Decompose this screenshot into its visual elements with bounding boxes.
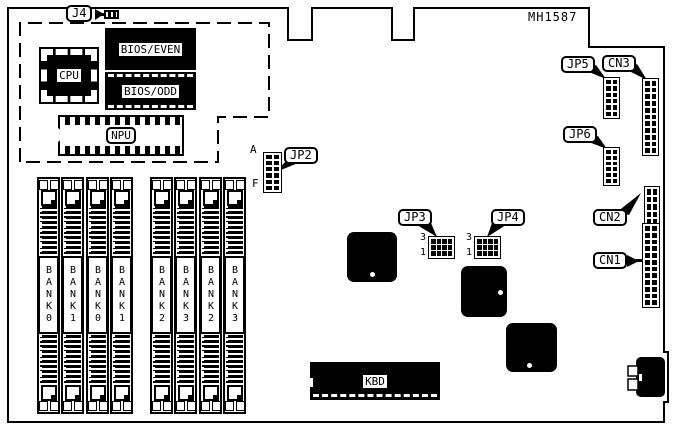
cn3-label: CN3: [608, 56, 630, 70]
jp2-pin-a-label: A: [250, 144, 257, 155]
j4-label: J4: [72, 6, 86, 20]
plcc-chip-3-pin1-dot: [527, 363, 532, 368]
j4-callout: J4: [66, 5, 92, 22]
bios-odd-chip: BIOS/ODD: [105, 72, 196, 110]
cn1-connector: [642, 223, 660, 308]
motherboard-diagram: J4 CPU BIOS/EVEN BIOS/ODD NPU: [0, 0, 673, 434]
cn1-label: CN1: [599, 253, 621, 267]
board-id: MH1587: [528, 11, 577, 24]
bank-label: BANK3: [181, 265, 191, 325]
plcc-chip-1: [347, 232, 397, 282]
bank-label: BANK3: [230, 265, 240, 325]
plcc-chip-2: [461, 266, 507, 317]
bios-odd-top-pins: [108, 74, 193, 77]
cn1-callout: CN1: [593, 252, 627, 269]
cpu-socket: CPU: [39, 47, 99, 104]
bank-module-7: BANK3: [223, 177, 246, 414]
bios-odd-bottom-pins: [108, 105, 193, 108]
cn2-callout: CN2: [593, 209, 627, 226]
jp3-pin1-label: 1: [420, 247, 426, 258]
jp4-callout: JP4: [491, 209, 525, 226]
jp2-label: JP2: [290, 148, 312, 162]
jp6-callout: JP6: [563, 126, 597, 143]
jp5-callout: JP5: [561, 56, 595, 73]
bank-module-4: BANK2: [150, 177, 173, 414]
npu-top-pins: [60, 117, 182, 125]
jp2-pin-f-label: F: [252, 178, 259, 189]
jp2-header: [263, 152, 282, 193]
kbd-label: KBD: [362, 374, 388, 389]
bank-label: BANK0: [44, 265, 54, 325]
bank-label: BANK2: [157, 265, 167, 325]
jp6-header: [603, 147, 620, 186]
bank-label: BANK2: [206, 265, 216, 325]
bank-module-1: BANK1: [61, 177, 84, 414]
bios-even-label: BIOS/EVEN: [118, 42, 184, 57]
cpu-label: CPU: [56, 68, 82, 83]
jp5-header: [603, 77, 620, 119]
bios-even-chip: BIOS/EVEN: [105, 28, 196, 70]
bank-module-3: BANK1: [110, 177, 133, 414]
cn2-label: CN2: [599, 210, 621, 224]
cn3-callout: CN3: [602, 55, 636, 72]
bank-module-6: BANK2: [199, 177, 222, 414]
cpu-pin1-dot: [90, 95, 97, 102]
kbd-chip: KBD: [310, 362, 440, 400]
bank-label: BANK1: [117, 265, 127, 325]
npu-bottom-pins: [60, 146, 182, 154]
jp3-pin3-label: 3: [420, 232, 426, 243]
jp5-label: JP5: [567, 57, 589, 71]
jp3-label: JP3: [404, 210, 426, 224]
bank-label: BANK0: [93, 265, 103, 325]
npu-notch: [58, 128, 67, 142]
kbd-notch: [308, 378, 313, 387]
cn3-connector: [642, 78, 659, 156]
jp4-pin3-label: 3: [466, 232, 472, 243]
jp4-header: [474, 236, 501, 259]
jp4-pin1-label: 1: [466, 247, 472, 258]
bios-odd-label: BIOS/ODD: [121, 84, 180, 99]
bank-module-2: BANK0: [86, 177, 109, 414]
npu-socket: NPU: [58, 115, 184, 156]
jp4-label: JP4: [497, 210, 519, 224]
plcc-chip-1-pin1-dot: [370, 272, 375, 277]
bank-label: BANK1: [68, 265, 78, 325]
jp2-callout: JP2: [284, 147, 318, 164]
bank-module-5: BANK3: [174, 177, 197, 414]
plcc-chip-3: [506, 323, 557, 372]
jp3-header: [428, 236, 455, 259]
npu-label: NPU: [106, 127, 136, 144]
cn2-connector: [644, 186, 660, 228]
kbd-bottom-pins: [313, 394, 437, 397]
j4-connector: [104, 10, 119, 19]
plcc-chip-2-pin1-dot: [498, 290, 503, 295]
bank-module-0: BANK0: [37, 177, 60, 414]
jp6-label: JP6: [569, 127, 591, 141]
jp3-callout: JP3: [398, 209, 432, 226]
